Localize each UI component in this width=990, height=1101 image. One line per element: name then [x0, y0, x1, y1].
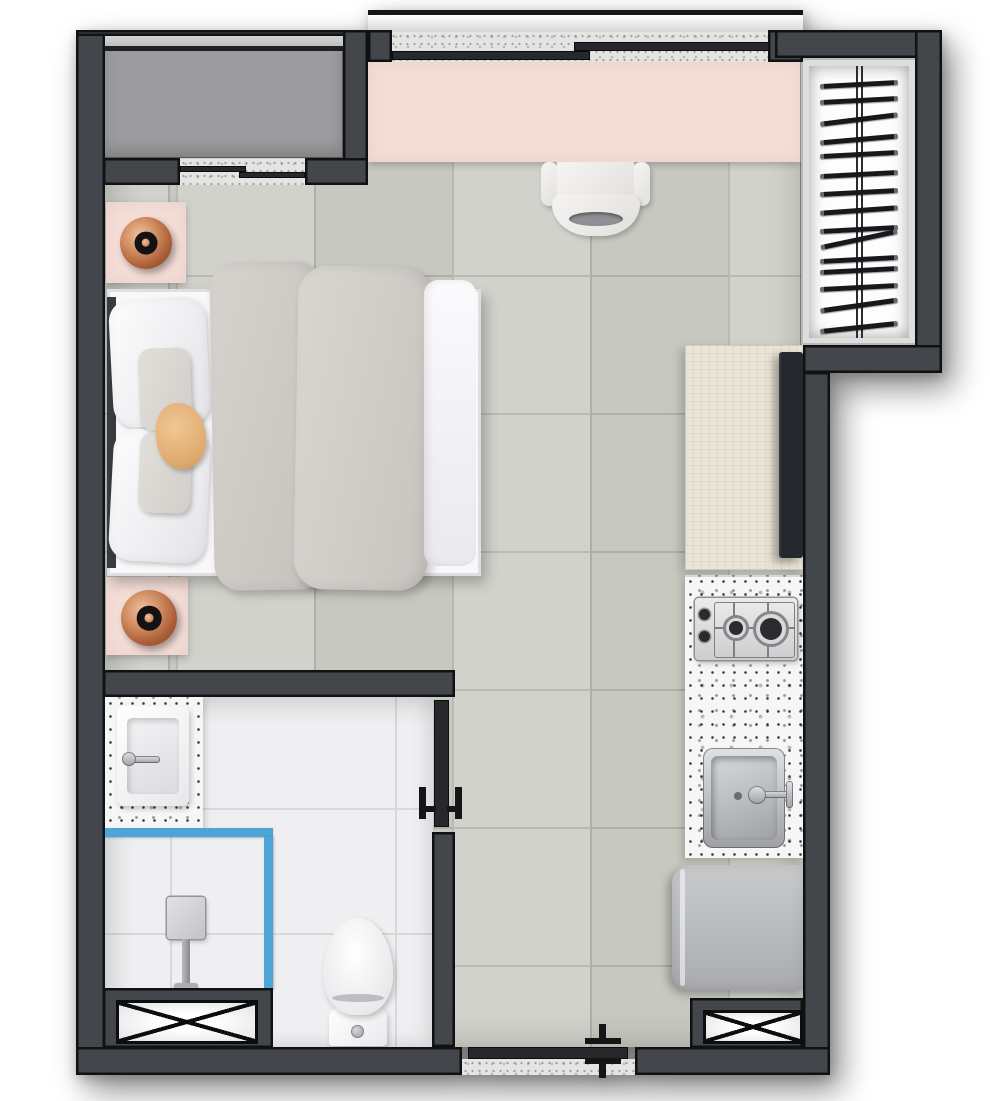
- drying-rack-bar: [820, 188, 898, 197]
- desk-counter: [368, 62, 801, 162]
- wall-bottom-left: [76, 1047, 462, 1075]
- kitchen-faucet-base: [748, 786, 766, 804]
- lamp-dot: [145, 614, 153, 622]
- wall-top-outline-left: [76, 30, 368, 36]
- burner-cap: [729, 621, 743, 635]
- two-burner-cooktop: [695, 598, 797, 660]
- ventilation-shaft-left: [116, 1000, 258, 1044]
- wall-balcony-bottom-left: [103, 158, 180, 185]
- bathroom-door-handle-outer: [419, 787, 426, 819]
- balcony-door-leaf: [239, 172, 305, 178]
- drying-rack-bar: [820, 255, 898, 264]
- drying-rack-bar: [820, 150, 898, 159]
- drying-rack-bar: [820, 321, 898, 334]
- bathroom-door-handle-inner-bar: [447, 806, 462, 812]
- kitchen-sink-basin: [711, 756, 777, 840]
- drying-rack-bar: [820, 266, 898, 275]
- bed-duvet: [293, 265, 433, 591]
- drying-rack-bar: [820, 134, 898, 146]
- toilet-seat-line: [332, 994, 384, 1002]
- bathroom-faucet-base: [122, 752, 136, 766]
- wall-right-upper: [915, 30, 942, 373]
- wall-rack-bottom: [803, 345, 942, 373]
- drying-rack-bar: [820, 298, 898, 314]
- wall-bottom-right: [635, 1047, 830, 1075]
- drying-rack-bar: [820, 205, 898, 215]
- kitchen-faucet-handle: [786, 781, 793, 808]
- kitchen-sink: [703, 748, 785, 848]
- lamp-disc: [135, 232, 158, 255]
- bathroom-door-handle-outer-bar: [419, 806, 436, 812]
- drying-rack-bar: [820, 283, 898, 292]
- washing-machine: [672, 865, 803, 990]
- tv: [779, 352, 803, 558]
- cooktop-knob: [699, 631, 710, 642]
- wall-bathroom-right-lower: [432, 832, 455, 1047]
- shower-enclosure-glass-vertical: [264, 837, 273, 990]
- floor-plan: [0, 0, 990, 1101]
- wall-right-lower: [803, 372, 830, 1075]
- copper-table-lamp-top: [120, 217, 172, 269]
- entry-door-handle-outer: [599, 1062, 606, 1078]
- drying-rack-bar: [820, 170, 898, 179]
- floor-plan-canvas: [0, 0, 990, 1101]
- wall-balcony-bottom-right: [305, 158, 368, 185]
- copper-table-lamp-bottom: [121, 590, 177, 646]
- main-window-ledge: [368, 15, 803, 32]
- bathroom-door-handle-inner: [455, 787, 462, 819]
- technical-balcony-window: [103, 46, 343, 51]
- desk-chair-slot: [569, 212, 623, 226]
- bed-sheet-fold: [424, 280, 476, 566]
- technical-balcony: [103, 33, 343, 158]
- shower-column-stem: [182, 939, 190, 987]
- drying-rack-bar: [820, 80, 898, 89]
- toilet-flush-button: [351, 1025, 364, 1038]
- drying-rack: [801, 58, 917, 345]
- wall-left: [76, 30, 105, 1075]
- kitchen-sink-drain: [734, 792, 742, 800]
- lamp-dot: [142, 239, 150, 247]
- cooktop-knob: [699, 609, 710, 620]
- drying-rack-bar: [820, 96, 898, 105]
- wall-bathroom-top: [103, 670, 455, 697]
- burner-cap: [760, 618, 782, 640]
- wall-window-pier-left: [368, 30, 392, 62]
- ventilation-shaft-right: [703, 1010, 803, 1044]
- burner-small: [723, 615, 749, 641]
- main-window-leaf-right: [574, 42, 770, 51]
- drying-rack-bar: [820, 112, 898, 126]
- washing-machine-door-edge: [680, 869, 685, 986]
- drying-rack-rail: [856, 66, 858, 338]
- drying-rack-rail: [861, 66, 863, 338]
- entry-door-handle-inner: [599, 1024, 606, 1040]
- shower-enclosure-glass-horizontal: [105, 828, 273, 837]
- shower-column-plate: [167, 897, 205, 939]
- main-window-leaf-left: [392, 51, 590, 60]
- lamp-disc: [137, 606, 162, 631]
- burner-large: [753, 611, 789, 647]
